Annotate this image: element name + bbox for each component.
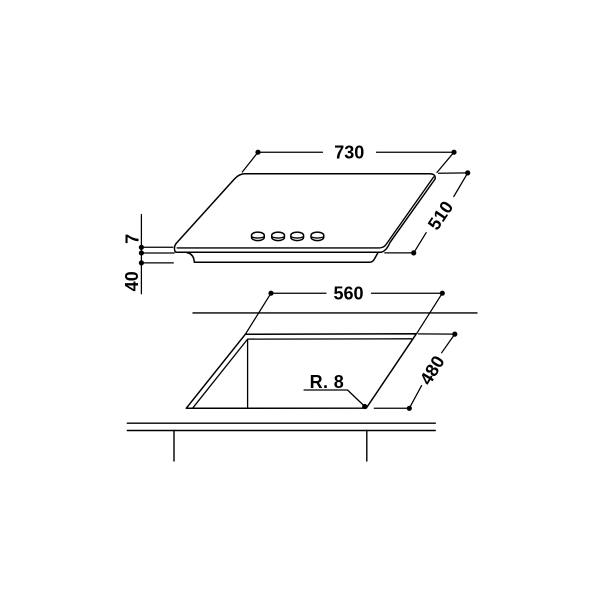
svg-text:40: 40 <box>122 271 142 291</box>
svg-text:7: 7 <box>123 234 143 244</box>
svg-text:730: 730 <box>334 143 364 163</box>
svg-text:R. 8: R. 8 <box>310 372 345 392</box>
svg-text:560: 560 <box>333 284 363 304</box>
